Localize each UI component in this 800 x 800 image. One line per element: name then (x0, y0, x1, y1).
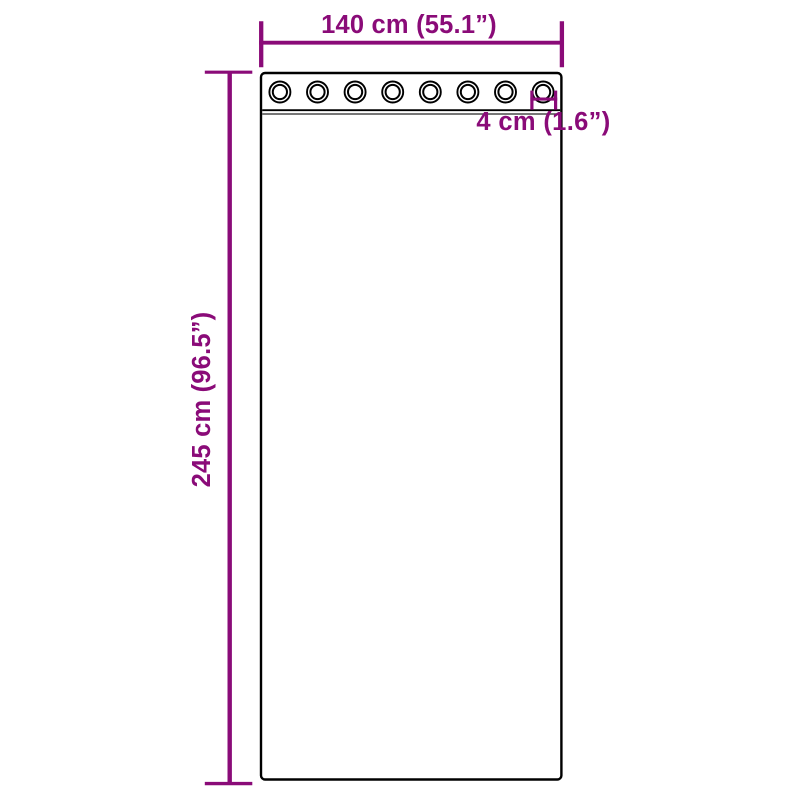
svg-text:245 cm (96.5”): 245 cm (96.5”) (188, 312, 216, 488)
svg-text:140 cm (55.1”): 140 cm (55.1”) (321, 11, 497, 39)
svg-text:4 cm (1.6”): 4 cm (1.6”) (476, 108, 610, 136)
